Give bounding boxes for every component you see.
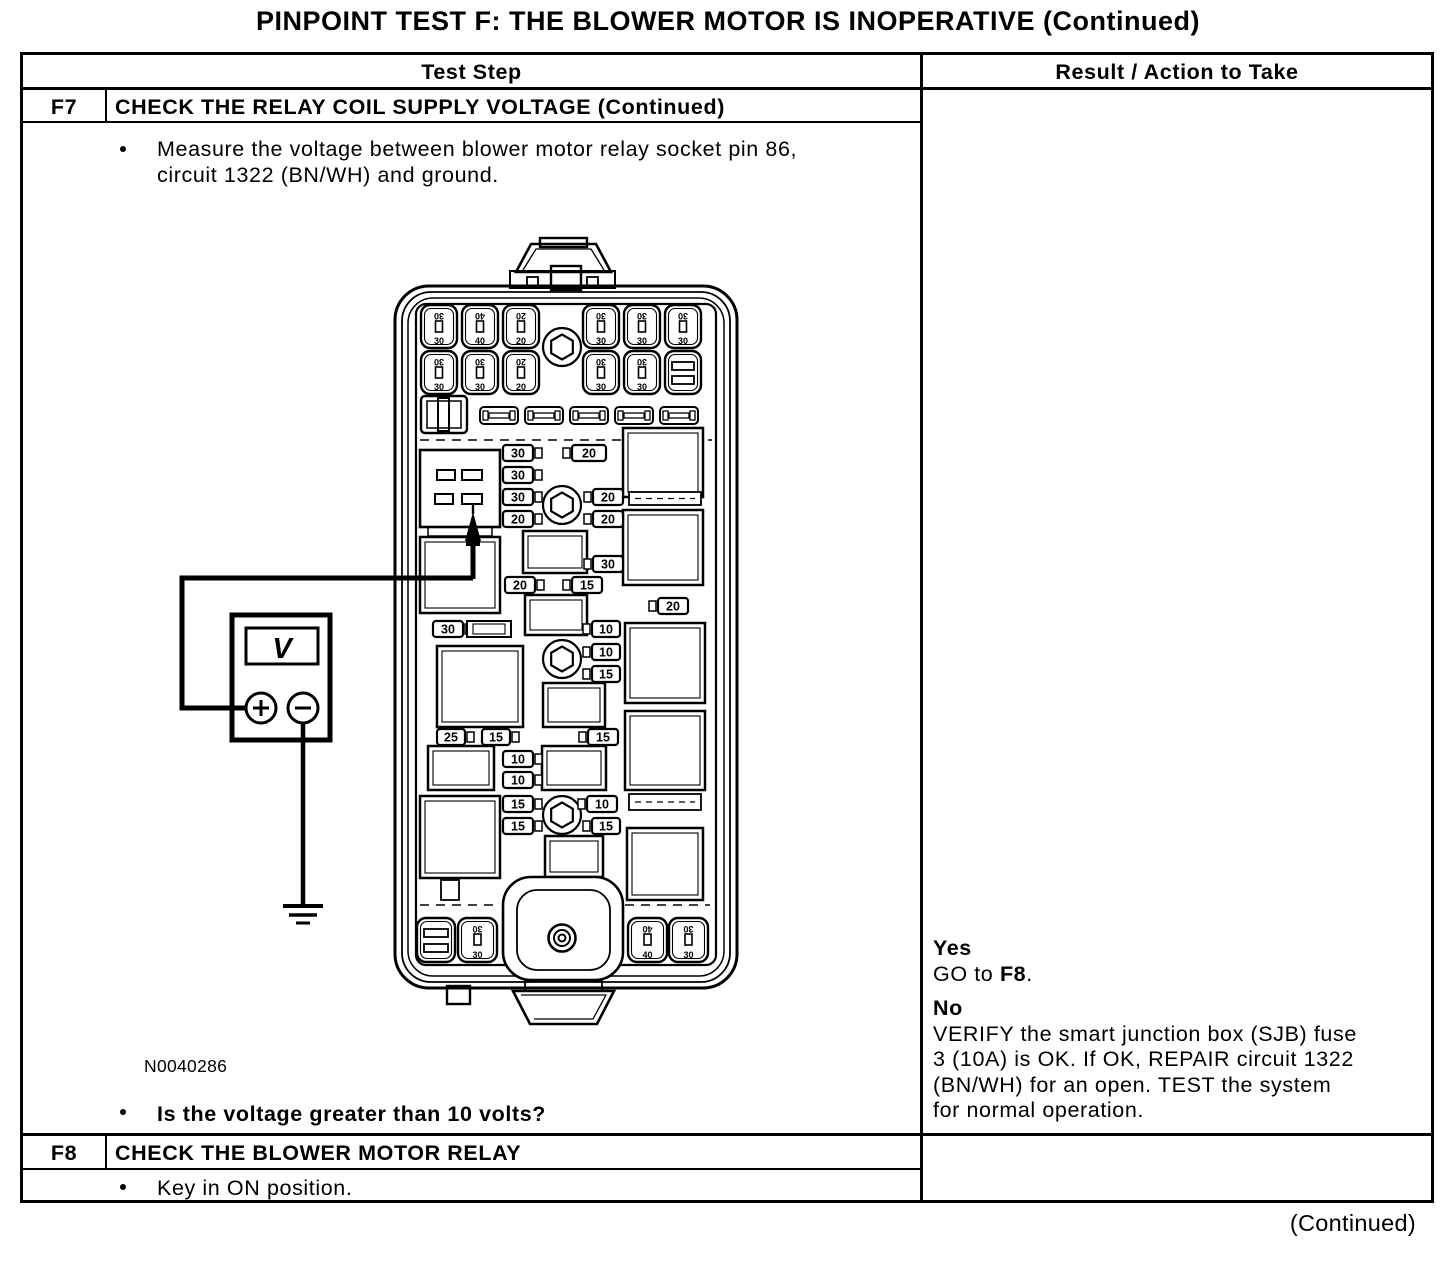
fuse-rating: 30 [475,382,485,392]
figure-label: N0040286 [144,1056,227,1077]
mini-fuse: 20 [505,577,544,593]
service-manual-page: PINPOINT TEST F: THE BLOWER MOTOR IS INO… [0,0,1456,1264]
f7-bullet1-line2: circuit 1322 (BN/WH) and ground. [157,162,499,188]
fuse-rating: 30 [475,357,485,367]
no-action-line: 3 (10A) is OK. If OK, REPAIR circuit 132… [933,1047,1431,1073]
fuse-rating: 40 [475,336,485,346]
fuse-rating: 30 [601,558,615,572]
fuse-rating: 30 [596,336,606,346]
fuse-rating: 30 [434,336,444,346]
mini-fuse: 25 [437,729,474,745]
cartridge-fuse: 3030 [669,918,708,962]
fuse-rating: 15 [580,579,594,593]
yes-action-period: . [1026,962,1033,986]
bus-connector [480,407,518,424]
hex-nut-stud [543,486,581,524]
yes-action: GO to F8. [933,962,1431,988]
bus-connector [615,407,653,424]
bullet-dot [120,1184,126,1190]
mini-fuse: 20 [503,511,542,527]
cartridge-fuse: 4040 [462,305,498,348]
fuse-rating: 30 [434,311,444,321]
fuse-rating: 30 [637,357,647,367]
mini-fuse: 15 [482,729,519,745]
fuse-rating: 30 [678,336,688,346]
mini-fuse: 30 [503,467,542,483]
step-id-f7: F7 [23,94,105,120]
bullet-dot [120,146,126,152]
f7-question: Is the voltage greater than 10 volts? [157,1101,546,1127]
fuse-rating: 20 [601,513,615,527]
mini-fuse: 20 [584,489,623,505]
f8-step-title: CHECK THE BLOWER MOTOR RELAY [115,1140,521,1166]
bus-connector [570,407,608,424]
hex-nut-stud [543,796,581,834]
fuse-rating: 30 [511,491,525,505]
mini-fuse: 15 [583,818,620,834]
cartridge-fuse: 4040 [628,918,667,962]
cartridge-fuse: 3030 [583,305,619,348]
fuse-rating: 40 [642,950,652,960]
fuse-rating: 15 [511,798,525,812]
mini-fuse: 10 [503,751,542,767]
fuse-rating: 30 [511,447,525,461]
dual-slot-fuse [417,918,455,962]
relay-block [542,746,606,790]
fuse-rating: 20 [666,600,680,614]
continued-note: (Continued) [1290,1210,1416,1237]
fuse-rating: 30 [637,311,647,321]
fuse-rating: 10 [511,774,525,788]
f7-label-divider [105,90,107,121]
cartridge-fuse: 3030 [421,305,457,348]
fuse-box-diagram: 3030404020203030303030303030303020203030… [150,230,750,1040]
f7-bullet1-line1: Measure the voltage between blower motor… [157,136,797,162]
fuse-rating: 30 [637,382,647,392]
cartridge-fuse: 3030 [665,305,701,348]
step-id-f8: F8 [23,1140,105,1166]
header-result: Result / Action to Take [923,59,1431,85]
fuse-rating: 30 [472,924,482,934]
f8-top-rule [23,1133,1431,1136]
fuse-rating: 30 [434,382,444,392]
dual-slot-fuse [665,351,701,394]
mini-fuse: 30 [503,489,542,505]
mini-fuse: 15 [579,729,618,745]
connector-block [421,396,467,433]
fuse-rating: 20 [516,382,526,392]
yes-action-text: GO to [933,962,1000,986]
relay-block [523,531,587,573]
fuse-rating: 15 [599,820,613,834]
mini-fuse: 15 [563,577,602,593]
fuse-rating: 20 [511,513,525,527]
relay-block [525,595,587,635]
relay-block [625,711,705,790]
cartridge-fuse: 2020 [503,305,539,348]
relay-block [543,683,605,727]
no-action-line: for normal operation. [933,1098,1431,1124]
fuse-rating: 20 [513,579,527,593]
fuse-rating: 15 [596,731,610,745]
blank-connector [467,621,511,637]
page-title: PINPOINT TEST F: THE BLOWER MOTOR IS INO… [0,6,1456,37]
fuse-rating: 15 [511,820,525,834]
no-action-line: (BN/WH) for an open. TEST the system [933,1073,1431,1099]
header-bottom-rule [23,87,1431,90]
cartridge-fuse: 3030 [421,351,457,394]
fuse-rating: 30 [683,924,693,934]
fuse-rating: 20 [516,311,526,321]
mini-fuse: 20 [649,598,688,614]
fuse-rating: 10 [599,623,613,637]
header-test-step: Test Step [23,59,920,85]
voltmeter-display-label: V [272,633,294,665]
relay-socket-pin86 [420,450,500,536]
fuse-rating: 15 [599,668,613,682]
fuse-rating: 20 [582,447,596,461]
fuse-rating: 30 [511,469,525,483]
bus-connector [660,407,698,424]
fuse-rating: 25 [444,731,458,745]
fuse-rating: 20 [516,357,526,367]
fuse-rating: 10 [511,753,525,767]
fuse-rating: 30 [637,336,647,346]
ground-symbol [283,723,323,923]
negative-terminal [288,693,318,723]
bus-connector [525,407,563,424]
fuse-rating: 10 [595,798,609,812]
mini-fuse: 10 [583,644,620,660]
mini-fuse: 10 [578,796,617,812]
mini-fuse: 10 [583,621,620,637]
relay-block [623,428,703,497]
relay-block [420,537,500,613]
cartridge-fuse: 3030 [458,918,497,962]
no-action-line: VERIFY the smart junction box (SJB) fuse [933,1022,1431,1048]
bottom-module [503,877,623,980]
fuse-rating: 30 [441,623,455,637]
hex-nut-stud [543,328,581,366]
cartridge-fuse: 3030 [624,305,660,348]
mini-fuse: 20 [584,511,623,527]
fuse-rating: 20 [601,491,615,505]
f8-label-divider [105,1136,107,1168]
cartridge-fuse: 3030 [462,351,498,394]
yes-label: Yes [933,936,1431,962]
relay-block [428,746,494,790]
relay-block [437,646,523,727]
fuse-rating: 30 [683,950,693,960]
relay-block [627,828,703,900]
hex-nut-stud [543,640,581,678]
cartridge-fuse: 2020 [503,351,539,394]
relay-block [623,510,703,585]
f8-bullet1: Key in ON position. [157,1175,352,1201]
bus-connector [629,492,701,505]
yes-action-step-ref: F8 [1000,962,1026,986]
fuse-rating: 30 [596,382,606,392]
fuse-rating: 30 [434,357,444,367]
column-divider [920,55,923,1200]
mini-fuse: 30 [503,445,542,461]
mini-fuse: 20 [563,445,606,461]
fuse-rating: 15 [489,731,503,745]
mini-fuse: 30 [584,556,623,572]
mini-fuse: 15 [503,818,542,834]
relay-block [420,796,500,878]
fuse-rating: 30 [596,357,606,367]
relay-block [625,623,705,703]
relay-tab [441,880,459,900]
mini-fuse: 15 [503,796,542,812]
voltmeter: V [232,615,330,740]
bullet-dot [120,1109,126,1115]
cartridge-fuse: 3030 [583,351,619,394]
relay-block [545,836,603,877]
bus-connector [629,794,701,810]
cartridge-fuse: 3030 [624,351,660,394]
positive-terminal [246,693,276,723]
fuse-rating: 30 [472,950,482,960]
f7-title-bottom-rule [23,121,920,123]
fuse-rating: 20 [516,336,526,346]
fuse-rating: 30 [596,311,606,321]
fuse-rating: 40 [642,924,652,934]
f7-step-title: CHECK THE RELAY COIL SUPPLY VOLTAGE (Con… [115,94,725,120]
f7-result-cell: Yes GO to F8. No VERIFY the smart juncti… [933,936,1431,1124]
mini-fuse: 15 [583,666,620,682]
f8-title-bottom-rule [23,1168,920,1170]
fuse-rating: 10 [599,646,613,660]
no-label: No [933,996,1431,1022]
fuse-rating: 40 [475,311,485,321]
fuse-rating: 30 [678,311,688,321]
mini-fuse: 10 [503,772,542,788]
